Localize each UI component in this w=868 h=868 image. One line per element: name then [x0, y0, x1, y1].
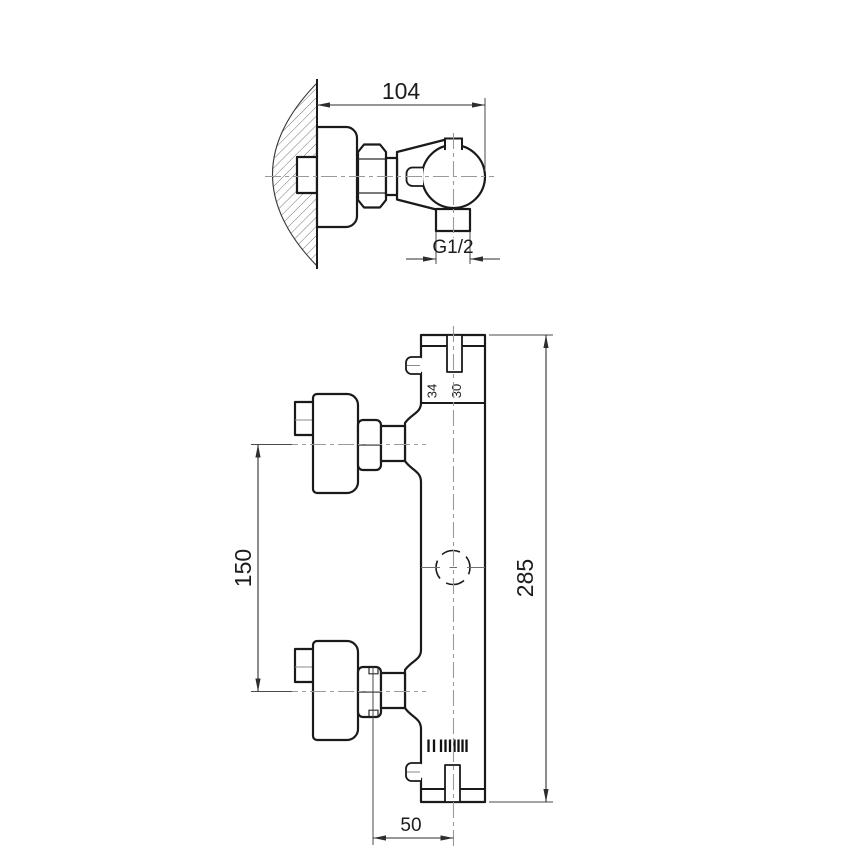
cartridge-mark-34: 34	[424, 384, 439, 398]
upper-connector	[381, 426, 405, 461]
dim-150-label: 150	[230, 549, 256, 587]
dim-50-arrow-right	[441, 835, 454, 840]
dim-104-arrow-right	[472, 102, 485, 107]
lower-handle-body	[313, 641, 358, 740]
dim-150-arrow-top	[255, 445, 260, 458]
dim-150: 150	[230, 445, 292, 692]
dim-285-arrow-bottom	[543, 789, 548, 802]
dim-g12: G1/2	[406, 232, 500, 264]
lower-handle-assembly	[295, 641, 405, 740]
dim-50-arrow-left	[373, 835, 386, 840]
cartridge-slot-bottom	[445, 765, 460, 802]
dim-285-arrow-top	[543, 335, 548, 348]
dim-g12-label: G1/2	[432, 237, 473, 258]
dim-50-label: 50	[400, 815, 421, 836]
escutcheon-side	[297, 157, 317, 193]
top-view: 104 G1/2	[265, 78, 500, 269]
cartridge-slot-top	[447, 335, 462, 372]
drawing-page: 104 G1/2 34 30	[0, 0, 868, 868]
dim-104-label: 104	[382, 78, 421, 104]
dim-285-label: 285	[512, 559, 538, 597]
dim-285: 285	[489, 335, 553, 802]
lower-connector	[381, 673, 405, 708]
upper-handle-assembly	[295, 394, 405, 493]
cartridge-mark-30: 30	[449, 384, 464, 398]
dim-150-arrow-bottom	[255, 679, 260, 692]
dim-104-arrow-left	[317, 102, 330, 107]
technical-drawing-canvas: 104 G1/2 34 30	[0, 0, 868, 868]
front-view: 34 30	[230, 326, 553, 850]
upper-handle-body	[313, 394, 358, 493]
mixer-body	[405, 335, 485, 802]
